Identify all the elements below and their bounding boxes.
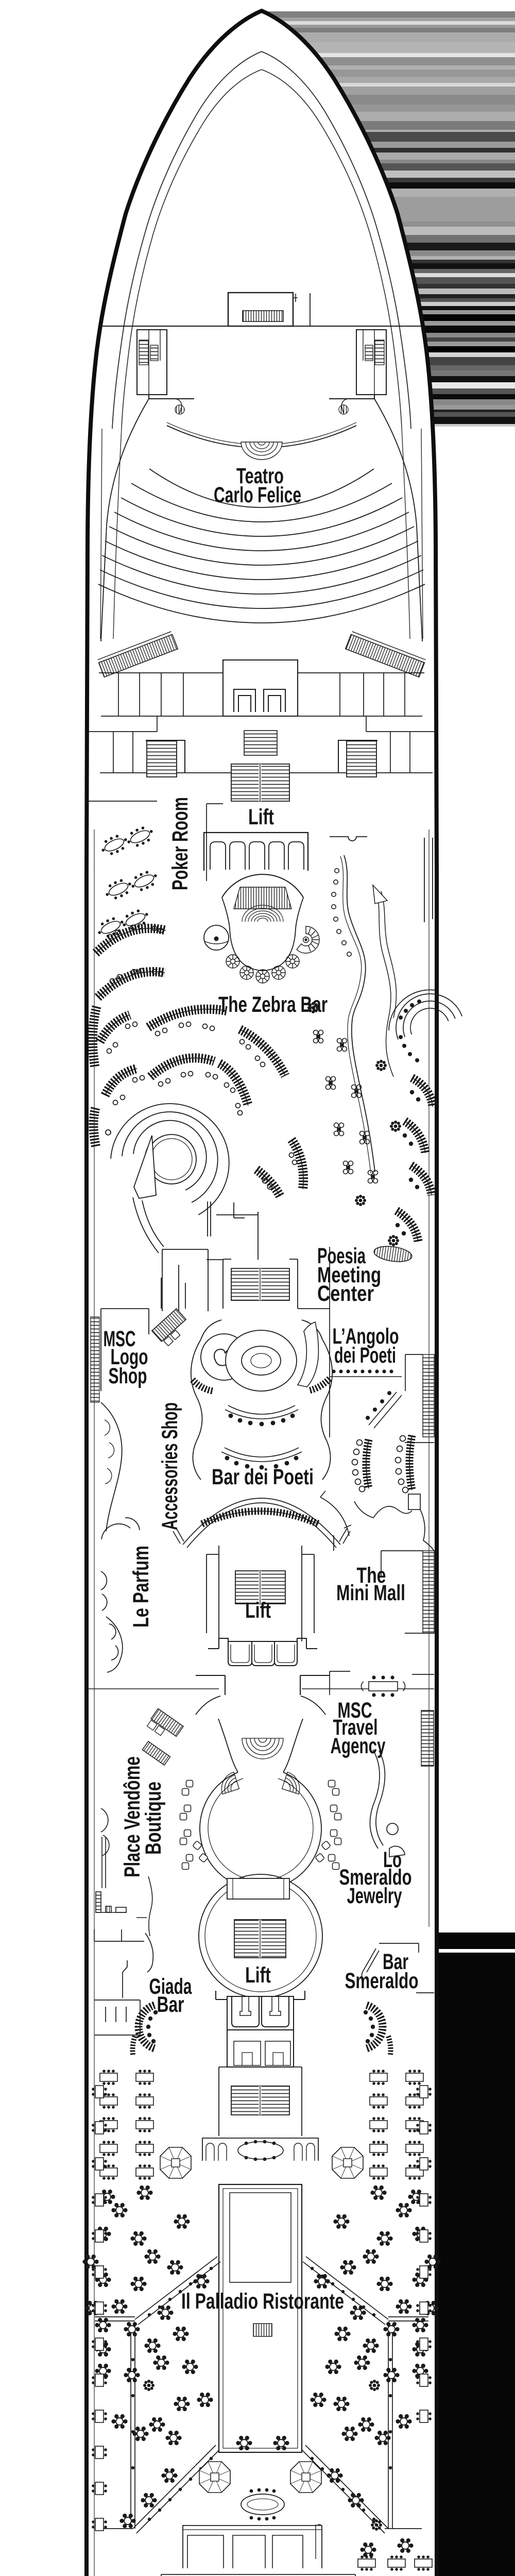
svg-text:Bar dei Poeti: Bar dei Poeti	[212, 1465, 314, 1489]
svg-text:Lift: Lift	[245, 1598, 271, 1623]
svg-text:Il Palladio Ristorante: Il Palladio Ristorante	[181, 2289, 344, 2314]
svg-text:dei Poeti: dei Poeti	[334, 1343, 396, 1368]
svg-text:Lift: Lift	[245, 1963, 271, 1988]
svg-text:Jewelry: Jewelry	[347, 1884, 402, 1908]
svg-text:Le Parfum: Le Parfum	[129, 1546, 153, 1628]
svg-text:Center: Center	[317, 1281, 374, 1306]
svg-text:Poker Room: Poker Room	[168, 797, 193, 890]
svg-text:Shop: Shop	[109, 1364, 147, 1388]
svg-text:Lift: Lift	[248, 805, 274, 829]
svg-text:Boutique: Boutique	[141, 1782, 166, 1855]
svg-text:Bar: Bar	[157, 1992, 184, 2017]
svg-text:Smeraldo: Smeraldo	[345, 1969, 419, 1993]
svg-text:Accessories Shop: Accessories Shop	[158, 1402, 182, 1530]
svg-text:Mini Mall: Mini Mall	[336, 1581, 405, 1605]
svg-text:Agency: Agency	[331, 1734, 386, 1758]
